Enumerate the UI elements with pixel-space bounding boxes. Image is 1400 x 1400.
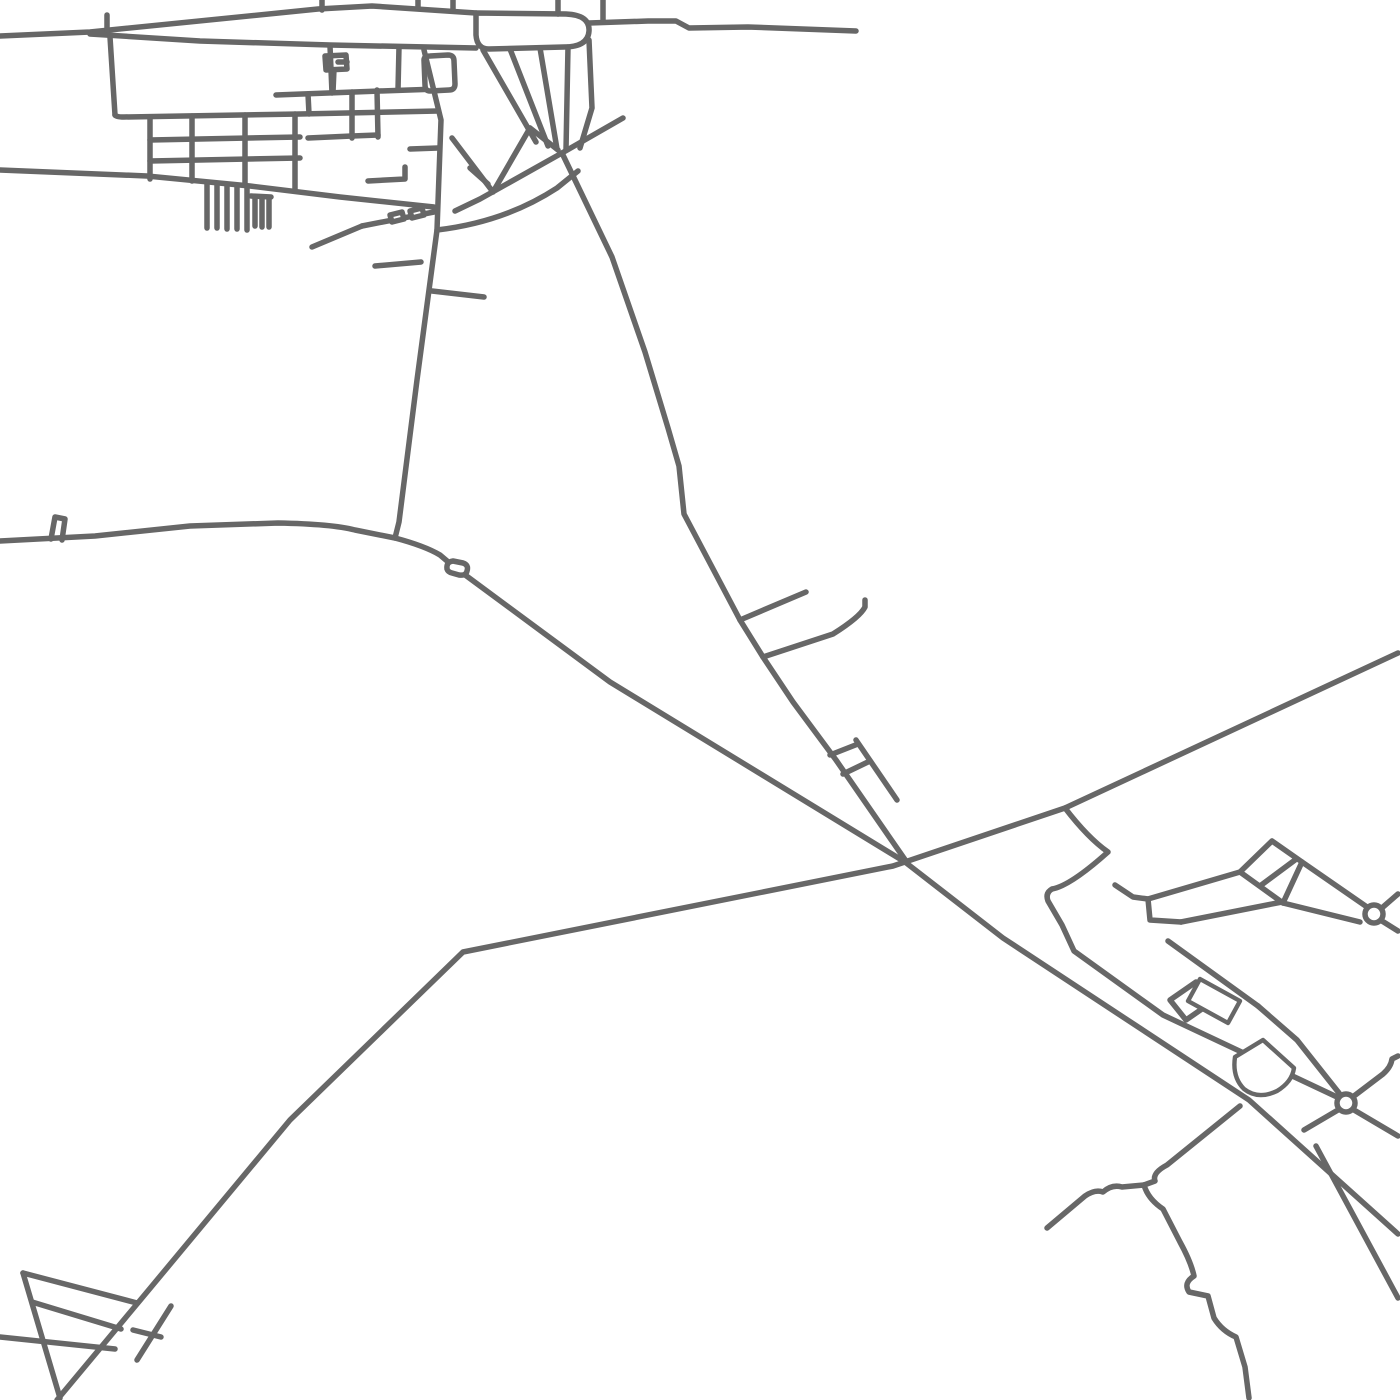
southeast--wiggle-south-arm <box>1144 1185 1249 1398</box>
hatched-building-fan-outline <box>1234 1040 1294 1095</box>
southwest-triangle--triangle-line-1 <box>23 1273 137 1303</box>
compound--roundabout2-stub-sw <box>1304 1110 1338 1130</box>
village-south--mark-box-1 <box>390 212 404 222</box>
southeast--wiggle-west-arm <box>1047 1185 1144 1228</box>
center-junction--ladder-rung-1 <box>830 744 858 755</box>
village-south--short-road-2 <box>432 291 484 297</box>
compound--roundabout2-stub-ne <box>1354 1056 1398 1096</box>
village-center--corner-road-2 <box>410 148 438 149</box>
village-center--mid-cell-bar <box>308 136 352 138</box>
southwest-triangle--triangle-line-2 <box>23 1273 60 1398</box>
village-north--top-loop-pill <box>476 13 589 49</box>
compound--corridor-lower <box>1283 903 1360 922</box>
center-junction--hook-road <box>763 600 865 657</box>
village-north--top-road-east <box>589 21 856 31</box>
map-viewport[interactable] <box>0 0 1400 1400</box>
compound--tilted-square <box>1240 841 1302 903</box>
southwest-triangle--triangle-line-4 <box>32 1302 121 1329</box>
compound--link-to-square-bottom <box>1181 902 1282 922</box>
arterials--southwest-northeast-road <box>57 653 1398 1400</box>
compound--roundabout1-stub-ne <box>1383 894 1398 907</box>
center-junction--spur-northeast <box>740 592 806 620</box>
village-grid--block-left-edge <box>110 37 115 115</box>
compound--corridor-upper <box>1302 862 1367 907</box>
arterials--west-east-main-road <box>0 523 1398 1234</box>
village-funnel--south-curve <box>437 171 578 230</box>
village-center--mid-vert-1 <box>308 94 309 114</box>
village-center--mid-vert-5 <box>398 47 399 90</box>
village-grid--grid-row-2 <box>150 158 300 161</box>
village-center--corner-road-1 <box>368 167 405 181</box>
village-funnel--fan-5 <box>580 40 592 148</box>
compound--claw-branch-road <box>1047 808 1337 1097</box>
village-grid--grid-top-road <box>115 111 438 117</box>
road-map-canvas <box>0 0 1400 1400</box>
center-junction--ladder-rung-2 <box>843 761 870 774</box>
village-south--mark-box-2 <box>410 208 424 218</box>
roundabout-east-lower <box>1337 1094 1355 1112</box>
compound--link-to-square-top <box>1148 872 1240 899</box>
road-network-layer <box>0 0 1398 1400</box>
arterials--west-road-bead <box>447 561 468 575</box>
village-funnel--fan-4 <box>566 47 568 150</box>
village-funnel--v-shape <box>452 128 530 192</box>
village-center--mid-vert-4 <box>377 90 378 137</box>
village-center--mid-cell-bar-2 <box>352 135 378 136</box>
village-south--lane-southwest <box>312 226 362 247</box>
southeast--wiggle-up-link <box>1144 1106 1240 1185</box>
compound--roundabout2-stub-se <box>1354 1110 1398 1136</box>
southwest-triangle--triangle-line-3 <box>0 1337 115 1349</box>
hatched-building-fan <box>1234 1040 1294 1095</box>
village-center--mid-road-a <box>276 89 438 95</box>
roundabout-east-upper <box>1365 905 1383 923</box>
village-north--second-top-road <box>90 34 476 48</box>
center-junction--ladder-parallel <box>856 740 897 800</box>
village-south--short-road-1 <box>375 262 421 266</box>
village-grid--grid-row-1 <box>150 137 300 140</box>
village-north--top-road-west <box>0 6 476 36</box>
village-center--mid-vert-2 <box>330 46 332 93</box>
compound--roundabout1-stub-se <box>1382 921 1398 931</box>
